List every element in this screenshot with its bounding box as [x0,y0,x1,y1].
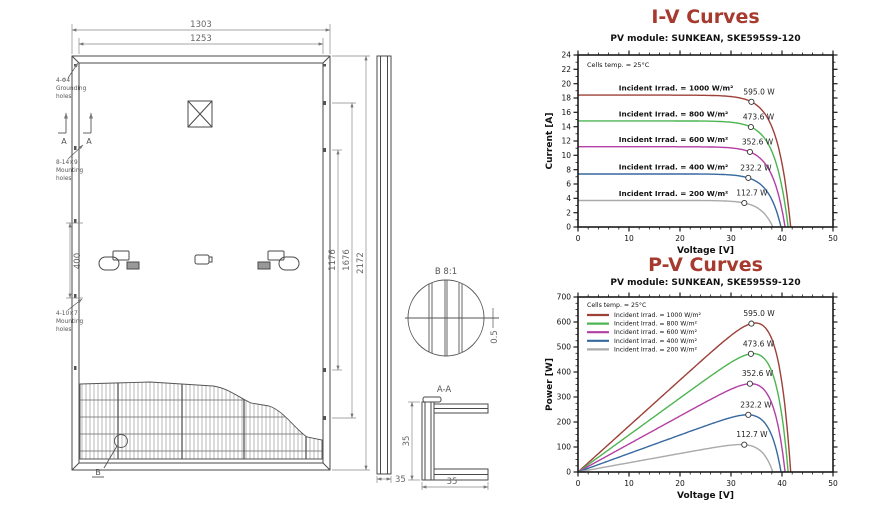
svg-text:200: 200 [557,418,572,427]
svg-text:10: 10 [561,151,571,160]
svg-text:4: 4 [566,194,571,203]
module-side-view [377,56,391,474]
svg-text:0: 0 [566,223,571,232]
pv-xlabel: Voltage [V] [677,491,734,501]
svg-text:300: 300 [557,393,572,402]
iv-curves-chart: I-V CurvesPV module: SUNKEAN, SKE595S9-1… [540,0,890,255]
svg-text:14: 14 [561,122,571,131]
mpp-marker [746,175,751,180]
pv-curve [578,445,773,472]
mpp-marker [747,381,752,386]
svg-text:20: 20 [675,479,685,488]
pv-tick-labels: 010203040500100200300400500600700 [557,293,838,488]
svg-text:8: 8 [566,165,571,174]
svg-text:24: 24 [561,51,571,60]
mpp-power-label: 232.2 W [740,163,772,172]
dim-hole-span-400: 400 [73,253,83,269]
svg-text:Mounting: Mounting [56,168,83,174]
series-inline-label: Incident Irrad. = 1000 W/m² [619,84,734,93]
mpp-power-label: 352.6 W [742,369,774,378]
svg-text:40: 40 [777,479,787,488]
svg-text:22: 22 [561,65,571,74]
junction-box-symbol [188,101,212,127]
svg-text:20: 20 [675,234,685,243]
grounding-holes-label: 4-Φ4 Grounding holes [56,63,87,100]
legend-entry-label: Incident Irrad. = 600 W/m² [614,329,698,336]
svg-text:18: 18 [561,94,571,103]
mpp-power-label: 112.7 W [736,430,768,439]
section-aa-profile [422,397,488,480]
dim-detail-gap: 0.5 [490,330,500,344]
svg-text:10: 10 [624,479,634,488]
detail-b-callout-label: B [95,468,101,477]
series-inline-label: Incident Irrad. = 800 W/m² [619,109,728,118]
charts-column: I-V CurvesPV module: SUNKEAN, SKE595S9-1… [540,0,890,507]
svg-text:50: 50 [828,479,838,488]
pv-subtitle: PV module: SUNKEAN, SKE595S9-120 [610,278,800,288]
svg-text:2: 2 [566,208,571,217]
svg-text:700: 700 [557,293,572,302]
iv-title: I-V Curves [651,6,759,28]
svg-text:30: 30 [726,479,736,488]
mpp-marker [749,99,754,104]
mpp-power-label: 595.0 W [743,87,775,96]
mpp-marker [747,149,752,154]
mpp-power-label: 352.6 W [742,137,774,146]
mpp-marker [748,351,753,356]
svg-text:500: 500 [557,343,572,352]
datasheet-page: B A A 4-Φ4 Grounding holes 8-14×9 Mounti… [0,0,890,507]
pv-curves-chart: P-V CurvesPV module: SUNKEAN, SKE595S9-1… [540,255,890,507]
dim-height-1676: 1676 [342,249,352,271]
pv-legend: Cells temp. = 25°CIncident Irrad. = 1000… [587,301,701,353]
series-inline-label: Incident Irrad. = 600 W/m² [619,135,728,144]
svg-text:10: 10 [624,234,634,243]
section-aa-title: A-A [437,385,452,395]
mpp-power-label: 473.6 W [743,339,775,348]
svg-text:16: 16 [561,108,571,117]
iv-ylabel: Current [A] [545,112,555,169]
legend-entry-label: Incident Irrad. = 1000 W/m² [614,312,701,319]
mpp-power-label: 112.7 W [736,189,768,198]
mpp-marker [742,442,747,447]
cut-marker-a-2: A [86,137,92,146]
mpp-power-label: 232.2 W [740,400,772,409]
svg-text:Grounding: Grounding [56,86,87,92]
side-view-dim [377,476,391,483]
legend-entry-label: Incident Irrad. = 400 W/m² [614,338,698,345]
svg-text:400: 400 [557,368,572,377]
pv-ylabel: Power [W] [545,358,555,411]
legend-entry-label: Incident Irrad. = 200 W/m² [614,346,698,353]
module-technical-drawing: B A A 4-Φ4 Grounding holes 8-14×9 Mounti… [0,0,540,507]
svg-text:50: 50 [828,234,838,243]
mpp-marker [748,124,753,129]
svg-text:0: 0 [576,479,581,488]
svg-text:holes: holes [56,94,71,100]
svg-text:30: 30 [726,234,736,243]
cut-marker-a-1: A [61,137,67,146]
svg-text:8-14×9: 8-14×9 [56,160,78,166]
svg-text:Mounting: Mounting [56,319,83,325]
svg-text:0: 0 [566,468,571,477]
mpp-marker [742,200,747,205]
svg-text:holes: holes [56,176,71,182]
svg-text:100: 100 [557,443,572,452]
svg-text:holes: holes [56,327,71,333]
pv-point-labels: 595.0 W473.6 W352.6 W232.2 W112.7 W [736,309,775,447]
legend-note: Cells temp. = 25°C [587,301,646,309]
mpp-marker [746,412,751,417]
iv-xlabel: Voltage [V] [677,246,734,255]
mpp-marker [749,321,754,326]
svg-text:4-Φ4: 4-Φ4 [56,78,70,84]
detail-b-view [405,280,499,356]
svg-text:40: 40 [777,234,787,243]
pv-title: P-V Curves [648,255,763,276]
frame-hole-marks [74,64,326,420]
mpp-power-label: 473.6 W [743,113,775,122]
svg-text:12: 12 [561,137,571,146]
svg-text:4-10×7: 4-10×7 [56,311,78,317]
detail-b-title: B 8:1 [435,267,457,277]
dim-side-width-35: 35 [395,475,406,485]
series-inline-label: Incident Irrad. = 400 W/m² [619,163,728,172]
dim-width-inner: 1253 [190,34,212,44]
dim-height-1176: 1176 [328,249,338,271]
dim-section-width: 35 [447,477,458,487]
iv-subtitle: PV module: SUNKEAN, SKE595S9-120 [610,34,800,44]
pv-curve [578,415,781,472]
svg-text:6: 6 [566,180,571,189]
svg-text:20: 20 [561,79,571,88]
dim-width-outer: 1303 [190,20,212,30]
iv-point-labels: 595.0 WIncident Irrad. = 1000 W/m²473.6 … [619,84,775,206]
legend-entry-label: Incident Irrad. = 800 W/m² [614,321,698,328]
dim-section-height: 35 [402,436,412,447]
mpp-power-label: 595.0 W [743,309,775,318]
dim-height-2172: 2172 [356,252,366,274]
svg-text:0: 0 [576,234,581,243]
iv-curve [578,147,785,227]
section-cut-markers [58,113,91,133]
connector-cables [99,251,299,270]
svg-text:600: 600 [557,318,572,327]
iv-note: Cells temp. = 25°C [587,61,650,69]
series-inline-label: Incident Irrad. = 200 W/m² [619,189,728,198]
